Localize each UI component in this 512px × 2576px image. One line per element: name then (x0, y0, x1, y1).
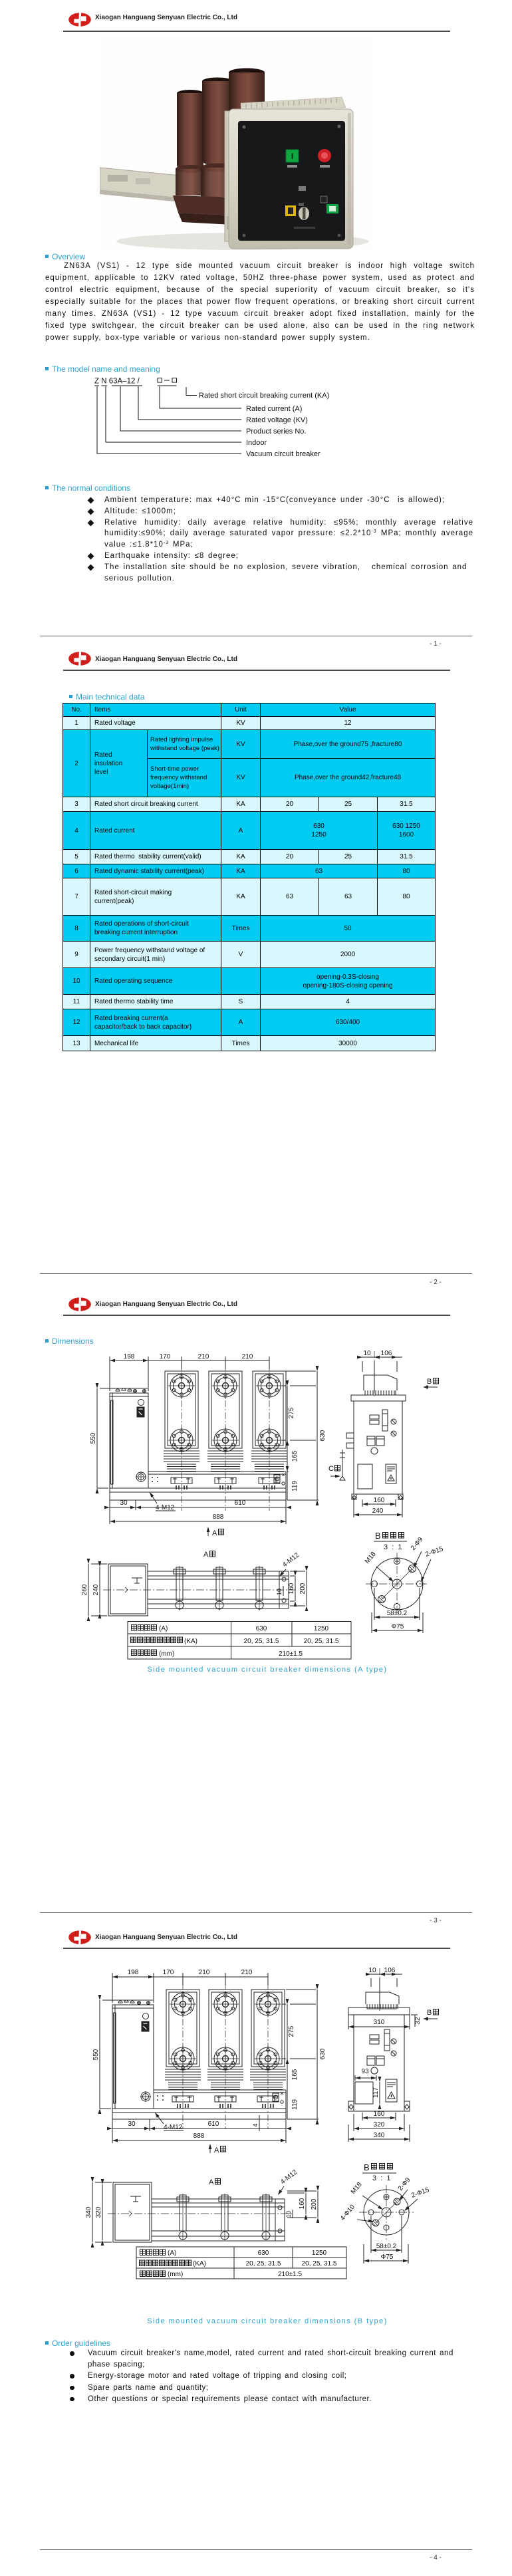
svg-text:170: 170 (163, 1969, 174, 1976)
svg-text:58±0.2: 58±0.2 (387, 1610, 408, 1617)
svg-text:30: 30 (128, 2121, 136, 2128)
svg-text:A: A (209, 2178, 214, 2186)
svg-text:A: A (214, 2146, 219, 2154)
svg-text:B: B (364, 2162, 370, 2172)
svg-text:3 : 1: 3 : 1 (384, 1543, 402, 1551)
svg-text:610: 610 (235, 1499, 246, 1507)
svg-text:58±0.2: 58±0.2 (376, 2243, 397, 2250)
svg-text:165: 165 (291, 1450, 299, 1462)
svg-text:610: 610 (208, 2121, 219, 2128)
svg-text:210: 210 (198, 1353, 209, 1360)
svg-text:4-M12: 4-M12 (281, 1551, 301, 1569)
svg-text:240: 240 (92, 1584, 100, 1595)
svg-text:119: 119 (291, 2099, 299, 2110)
svg-text:275: 275 (288, 1407, 295, 1418)
svg-text:340: 340 (85, 2206, 92, 2218)
svg-text:340: 340 (374, 2132, 385, 2139)
svg-text:888: 888 (193, 2132, 205, 2140)
svg-text:210±1.5: 210±1.5 (279, 1650, 303, 1658)
svg-text:630: 630 (258, 2250, 269, 2257)
svg-text:(A): (A) (168, 2250, 176, 2257)
svg-text:106: 106 (384, 1967, 396, 1974)
svg-text:10: 10 (363, 1350, 371, 1357)
svg-text:550: 550 (90, 1432, 97, 1444)
svg-text:A: A (212, 1529, 217, 1537)
svg-text:200: 200 (299, 1583, 307, 1594)
svg-text:275: 275 (288, 2025, 295, 2037)
svg-text:Rated short circuit breaking c: Rated short circuit breaking current (KA… (199, 392, 329, 400)
svg-text:Indoor: Indoor (246, 439, 267, 447)
svg-text:Rated voltage (KV): Rated voltage (KV) (246, 416, 308, 424)
svg-text:Rated current (A): Rated current (A) (246, 405, 302, 413)
svg-text:C: C (328, 1465, 334, 1473)
svg-text:260: 260 (81, 1584, 88, 1595)
svg-text:630: 630 (319, 1430, 326, 1441)
svg-text:198: 198 (128, 1969, 139, 1976)
svg-text:2-Ф9: 2-Ф9 (410, 1536, 425, 1552)
svg-text:888: 888 (213, 1513, 224, 1521)
svg-text:30: 30 (120, 1499, 128, 1507)
svg-text:160: 160 (299, 2198, 306, 2209)
svg-text:4-M12: 4-M12 (164, 2124, 183, 2131)
svg-text:160: 160 (288, 1583, 295, 1594)
svg-text:210±1.5: 210±1.5 (278, 2271, 303, 2278)
svg-text:550: 550 (92, 2049, 100, 2060)
svg-text:A: A (203, 1551, 209, 1559)
svg-text:630: 630 (256, 1625, 267, 1632)
svg-text:2-Ф15: 2-Ф15 (410, 2186, 430, 2200)
svg-text:210: 210 (241, 1969, 253, 1976)
svg-text:(KA): (KA) (193, 2260, 206, 2267)
svg-text:Ф75: Ф75 (381, 2254, 394, 2261)
svg-text:B: B (427, 1378, 432, 1386)
svg-text:320: 320 (374, 2121, 385, 2128)
svg-text:240: 240 (372, 1507, 384, 1515)
svg-text:20, 25, 31.5: 20, 25, 31.5 (246, 2260, 281, 2267)
svg-text:210: 210 (199, 1969, 210, 1976)
svg-text:20, 25, 31.5: 20, 25, 31.5 (302, 2260, 337, 2267)
svg-text:165: 165 (291, 2069, 299, 2080)
svg-text:Z N 63A–12 /: Z N 63A–12 / (94, 378, 140, 386)
svg-text:10: 10 (285, 2211, 292, 2218)
svg-text:20, 25, 31.5: 20, 25, 31.5 (244, 1638, 279, 1645)
svg-text:310: 310 (374, 2019, 385, 2026)
svg-text:320: 320 (95, 2206, 102, 2218)
svg-text:1250: 1250 (312, 2250, 327, 2257)
svg-text:3 : 1: 3 : 1 (372, 2174, 391, 2182)
svg-text:10: 10 (368, 1967, 376, 1974)
svg-text:Vacuum circuit breaker: Vacuum circuit breaker (246, 450, 320, 458)
svg-text:630: 630 (319, 2048, 326, 2059)
svg-text:2-Ф9: 2-Ф9 (397, 2176, 412, 2192)
svg-text:M18: M18 (350, 2181, 364, 2196)
svg-text:(mm): (mm) (159, 1650, 174, 1658)
svg-text:(A): (A) (159, 1625, 168, 1632)
svg-text:106: 106 (381, 1350, 392, 1357)
svg-text:B: B (427, 2009, 432, 2017)
svg-text:198: 198 (124, 1353, 135, 1360)
svg-text:93: 93 (361, 2068, 369, 2075)
svg-text:Product series No.: Product series No. (246, 428, 306, 436)
svg-text:117: 117 (372, 2087, 380, 2098)
svg-text:M18: M18 (364, 1551, 378, 1565)
svg-text:160: 160 (374, 1497, 385, 1504)
svg-text:10: 10 (276, 1589, 283, 1595)
svg-text:4: 4 (252, 2123, 259, 2126)
svg-text:119: 119 (291, 1481, 299, 1491)
svg-text:4-M12: 4-M12 (279, 2168, 299, 2186)
svg-text:(mm): (mm) (168, 2271, 183, 2278)
svg-text:4-Ф10: 4-Ф10 (339, 2203, 356, 2222)
svg-text:170: 170 (160, 1353, 171, 1360)
svg-text:200: 200 (311, 2198, 318, 2210)
svg-text:210: 210 (242, 1353, 253, 1360)
svg-text:I: I (291, 152, 293, 161)
svg-text:2-Ф15: 2-Ф15 (424, 1545, 444, 1559)
svg-text:1250: 1250 (314, 1625, 329, 1632)
svg-text:160: 160 (374, 2111, 385, 2118)
svg-text:20, 25, 31.5: 20, 25, 31.5 (304, 1638, 339, 1645)
svg-text:Ф75: Ф75 (392, 1623, 404, 1630)
svg-text:(KA): (KA) (184, 1638, 197, 1645)
svg-text:B: B (375, 1531, 381, 1541)
svg-text:32: 32 (414, 2017, 422, 2025)
